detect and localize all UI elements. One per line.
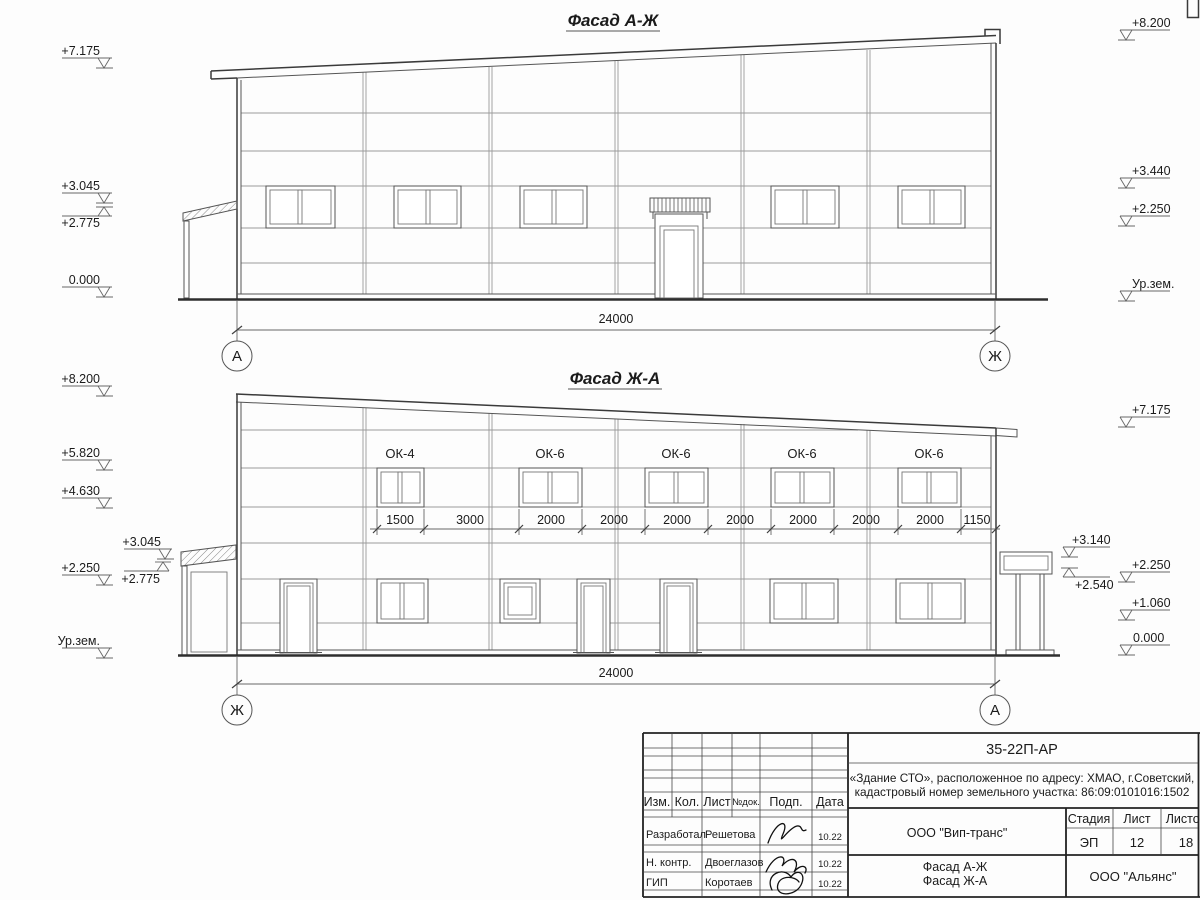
elevation-value: +2.540	[1075, 578, 1114, 592]
elevation-mark: Ур.зем.	[1118, 277, 1174, 301]
elevation-value: +7.175	[61, 44, 100, 58]
row-name: Двоеглазов	[705, 857, 764, 869]
elevation-value: +2.250	[1132, 558, 1171, 572]
elevation-value: Ур.зем.	[1132, 277, 1174, 291]
axis-marker-a: А	[222, 341, 252, 371]
door	[655, 579, 702, 653]
elevation-mark: +8.200	[61, 372, 113, 396]
window	[896, 579, 965, 623]
axis-label: А	[232, 348, 242, 365]
elevation-mark: +3.140	[1061, 533, 1111, 557]
window	[771, 468, 834, 507]
signature	[766, 824, 806, 894]
axis-label: Ж	[230, 702, 244, 719]
col-izm: Изм.	[644, 795, 671, 809]
dim-segment: 2000	[537, 513, 565, 527]
stage-value: ЭП	[1080, 835, 1099, 850]
door	[573, 579, 614, 653]
elevation-mark: +7.175	[61, 44, 113, 68]
elevation-mark: +2.540	[1061, 568, 1114, 592]
elevation-value: 0.000	[1133, 631, 1164, 645]
dim-segment: 2000	[789, 513, 817, 527]
window	[898, 468, 961, 507]
elevation-mark: +2.250	[1118, 202, 1171, 226]
door	[275, 579, 322, 653]
col-podp: Подп.	[769, 795, 802, 809]
row-date: 10.22	[818, 859, 842, 870]
elevation-value: Ур.зем.	[58, 634, 100, 648]
window-label: ОК-4	[385, 446, 414, 461]
dim-segment: 2000	[916, 513, 944, 527]
row-date: 10.22	[818, 832, 842, 843]
doc-number: 35-22П-АР	[986, 742, 1058, 758]
elevation-mark: +2.775	[61, 207, 113, 230]
elevation-mark: +2.775	[121, 562, 171, 586]
title-block: Изм. Кол. Лист №док. Подп. Дата Разработ…	[643, 733, 1200, 897]
door	[655, 214, 703, 298]
facade-drawing-svg: Фасад А-Ж	[0, 0, 1200, 900]
dim-segment: 2000	[726, 513, 754, 527]
axis-label: А	[990, 702, 1000, 719]
elevation-value: 0.000	[69, 273, 100, 287]
window	[520, 186, 587, 228]
dim-segment: 3000	[456, 513, 484, 527]
window	[377, 579, 428, 623]
facade-bottom-title: Фасад Ж-А	[570, 369, 661, 388]
facade-bottom-leanto	[181, 545, 236, 655]
facade-bottom-lower-openings	[275, 579, 965, 653]
project-line2: кадастровый номер земельного участка: 86…	[855, 785, 1190, 799]
facade-top-windows	[266, 186, 965, 228]
elevation-mark: 0.000	[1118, 631, 1170, 655]
elevation-value: +1.060	[1132, 596, 1171, 610]
dim-segment: 2000	[852, 513, 880, 527]
facade-top-title: Фасад А-Ж	[568, 11, 660, 30]
elevation-value: +2.775	[61, 216, 100, 230]
elevation-value: +8.200	[61, 372, 100, 386]
company-name: ООО "Вип-транс"	[907, 826, 1008, 840]
elevation-mark: +3.440	[1118, 164, 1171, 188]
facade-top: Фасад А-Ж	[61, 11, 1174, 371]
sign-board	[1000, 552, 1054, 656]
window	[771, 186, 839, 228]
stage-label: Стадия	[1068, 812, 1111, 826]
window-label: ОК-6	[787, 446, 816, 461]
window	[645, 468, 708, 507]
facade-bottom-upper-windows: ОК-4 ОК-6 ОК-6 ОК-6 ОК-6	[377, 446, 961, 507]
sheets-label: Листов	[1166, 812, 1200, 826]
facade-top-structure	[211, 30, 1000, 300]
row-role: Разработал	[646, 829, 706, 841]
dim-segment: 2000	[663, 513, 691, 527]
elevation-mark: +5.820	[61, 446, 113, 470]
drawing-sheet: Фасад А-Ж	[0, 0, 1200, 900]
facade-bottom-dimension: 24000	[232, 657, 1000, 695]
elevation-value: +2.775	[121, 572, 160, 586]
elevation-value: +2.250	[1132, 202, 1171, 216]
elevation-value: +3.140	[1072, 533, 1111, 547]
elevation-mark: Ур.зем.	[58, 634, 113, 658]
company2-name: ООО "Альянс"	[1090, 869, 1177, 884]
window-label: ОК-6	[914, 446, 943, 461]
elevation-value: +8.200	[1132, 16, 1171, 30]
window	[519, 468, 582, 507]
facade-top-dimension: 24000	[232, 301, 1000, 341]
dim-total: 24000	[599, 312, 634, 326]
col-list: Лист	[703, 795, 730, 809]
axis-marker-zh: Ж	[980, 341, 1010, 371]
window	[394, 186, 461, 228]
window-label: ОК-6	[661, 446, 690, 461]
facade-top-entrance	[650, 198, 710, 298]
elevation-mark: 0.000	[62, 273, 113, 297]
window	[266, 186, 335, 228]
window	[770, 579, 838, 623]
dim-total: 24000	[599, 666, 634, 680]
sheet-value: 12	[1130, 835, 1144, 850]
col-ndoc: №док.	[732, 797, 760, 808]
elevation-mark: +2.250	[61, 561, 113, 585]
elevation-mark: +2.250	[1118, 558, 1171, 582]
content-line2: Фасад Ж-А	[923, 874, 988, 888]
content-line1: Фасад А-Ж	[923, 860, 988, 874]
elevation-value: +5.820	[61, 446, 100, 460]
window	[377, 468, 424, 507]
elevation-mark: +8.200	[1118, 16, 1171, 40]
facade-bottom-window-dims: 1500 3000 2000 2000 2000 2000 2000 2000 …	[370, 509, 1000, 535]
window	[898, 186, 965, 228]
elevation-value: +3.440	[1132, 164, 1171, 178]
row-name: Коротаев	[705, 877, 753, 889]
row-role: ГИП	[646, 877, 668, 889]
elevation-value: +3.045	[122, 535, 161, 549]
elevation-mark: +7.175	[1118, 403, 1171, 427]
window	[500, 579, 540, 623]
row-date: 10.22	[818, 879, 842, 890]
axis-label: Ж	[988, 348, 1002, 365]
row-name: Решетова	[705, 829, 756, 841]
elevation-value: +3.045	[61, 179, 100, 193]
elevation-mark: +3.045	[61, 179, 113, 203]
elevation-mark: +4.630	[61, 484, 113, 508]
sheets-value: 18	[1179, 835, 1193, 850]
dim-segment: 1500	[386, 513, 414, 527]
elevation-value: +4.630	[61, 484, 100, 498]
dim-segment: 1150	[964, 513, 991, 527]
col-data: Дата	[816, 795, 844, 809]
col-kol: Кол.	[675, 795, 700, 809]
elevation-mark: +3.045	[122, 535, 174, 559]
project-line1: «Здание СТО», расположенное по адресу: Х…	[850, 771, 1195, 785]
facade-top-panel-joints	[241, 50, 991, 294]
axis-marker-zh: Ж	[222, 695, 252, 725]
facade-top-leanto	[183, 201, 237, 298]
axis-marker-a: А	[980, 695, 1010, 725]
window-label: ОК-6	[535, 446, 564, 461]
elevation-mark: +1.060	[1118, 596, 1171, 620]
elevation-value: +7.175	[1132, 403, 1171, 417]
elevation-value: +2.250	[61, 561, 100, 575]
sheet-frame-corner	[1188, 0, 1199, 18]
sheet-label: Лист	[1123, 812, 1150, 826]
dim-segment: 2000	[600, 513, 628, 527]
row-role: Н. контр.	[646, 857, 691, 869]
facade-bottom: Фасад Ж-А ОК-4 ОК-6 ОК-6 ОК-6	[58, 369, 1171, 725]
